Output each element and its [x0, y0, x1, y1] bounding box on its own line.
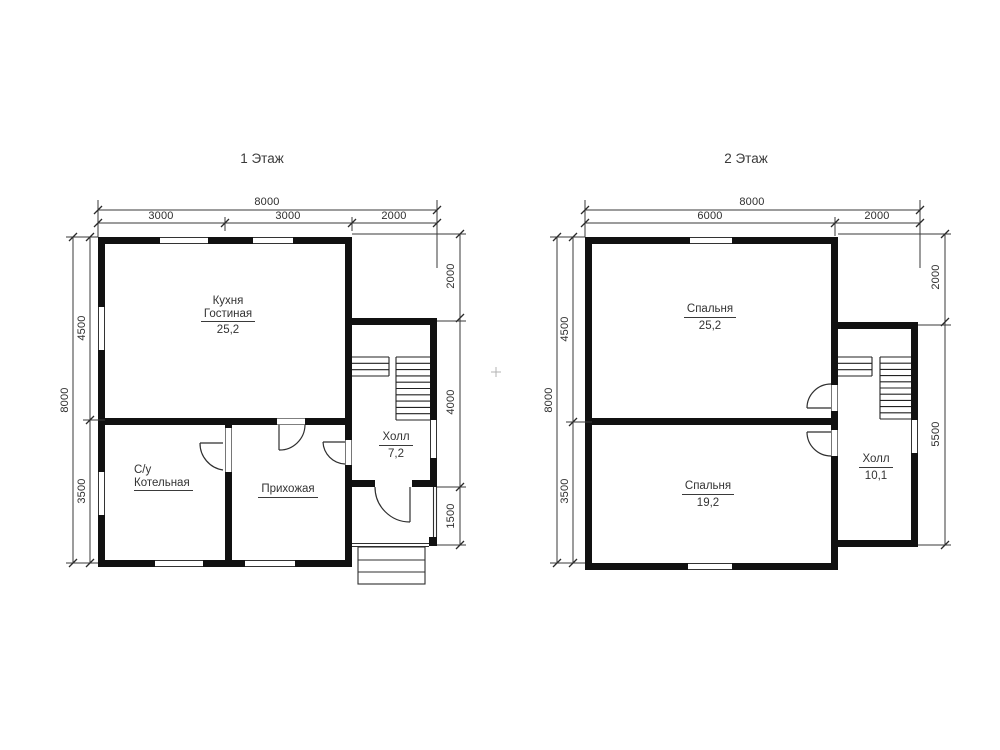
room-label-kitchen-living: Кухня Гостиная 25,2 — [186, 295, 270, 337]
dim-f1-top-total: 8000 — [237, 196, 297, 208]
wall-bottom — [98, 560, 352, 567]
dim-f2-left-seg1: 4500 — [559, 299, 571, 359]
stair-upper-flight — [838, 357, 880, 419]
dim-f1-top-seg2: 3000 — [258, 210, 318, 222]
room-label-boiler: С/у Котельная — [134, 464, 214, 491]
dimension-lines — [66, 200, 466, 563]
wall-hall-top — [838, 322, 918, 329]
dim-f1-left-total: 8000 — [59, 370, 71, 430]
window-opening — [688, 563, 732, 570]
floor1-dimensions — [66, 200, 466, 567]
room-name: Спальня — [684, 303, 736, 318]
wall-hall-right — [430, 318, 437, 487]
wall-left — [585, 237, 592, 570]
window-opening — [690, 237, 732, 244]
dim-f1-top-seg1: 3000 — [131, 210, 191, 222]
floor1-plan — [66, 200, 466, 584]
center-cross-mark — [491, 367, 501, 377]
floor2-walls — [585, 237, 918, 570]
dim-f2-right-seg2: 5500 — [930, 404, 942, 464]
dim-f1-left-seg2: 3500 — [76, 461, 88, 521]
floor1-walls — [98, 237, 437, 567]
dim-f2-top-seg2: 2000 — [847, 210, 907, 222]
floor2-stairs — [838, 357, 911, 419]
window-opening — [430, 420, 437, 458]
door-opening — [831, 430, 838, 456]
window-frames — [688, 238, 918, 570]
vestibule-walls — [352, 487, 437, 547]
door-kitchen-hallway — [279, 425, 305, 450]
window-opening — [253, 237, 293, 244]
dim-f2-right-seg1: 2000 — [930, 247, 942, 307]
floor2-windows — [688, 238, 918, 570]
floor1-openings — [98, 237, 437, 567]
dim-f1-right-seg3: 1500 — [445, 486, 457, 546]
floor1-stairs — [352, 357, 430, 420]
floor2-title: 2 Этаж — [686, 151, 806, 166]
wall-hall-bottom — [838, 540, 918, 547]
room-name: Прихожая — [258, 483, 317, 498]
window-opening — [911, 420, 918, 453]
room-area: 25,2 — [217, 322, 239, 337]
wall-hall-top — [352, 318, 437, 325]
room-name: Спальня — [682, 480, 734, 495]
door-jambs — [226, 419, 352, 473]
wall-top — [98, 237, 352, 244]
room-label-bedroom-upper: Спальня 25,2 — [668, 303, 752, 332]
wall-interior-horizontal — [105, 418, 345, 425]
door-bedroom-upper — [807, 384, 831, 408]
window-opening — [155, 560, 203, 567]
window-opening — [98, 307, 105, 350]
dim-f1-right-seg2: 4000 — [445, 372, 457, 432]
door-bedroom-lower — [807, 432, 831, 456]
stair-main-flight — [396, 357, 430, 420]
door-hallway-hall — [323, 442, 345, 464]
vestibule-corner-post — [429, 537, 437, 546]
room-name-line1: Кухня — [213, 295, 244, 308]
room-name-line2: Гостиная — [201, 308, 255, 323]
room-label-hall-f2: Холл 10,1 — [846, 453, 906, 482]
window-frames — [99, 238, 437, 567]
floorplan-linework — [0, 0, 1000, 750]
floor1-title: 1 Этаж — [202, 151, 322, 166]
window-opening — [98, 472, 105, 515]
entry-steps — [358, 547, 425, 584]
stair-upper-flight — [352, 357, 396, 420]
door-entry — [375, 487, 410, 522]
room-name: Холл — [859, 453, 892, 468]
dimension-ticks — [553, 206, 949, 567]
dim-f2-top-seg1: 6000 — [680, 210, 740, 222]
wall-left — [98, 237, 105, 567]
room-name-line2: Котельная — [134, 477, 193, 492]
door-opening — [345, 440, 352, 465]
dim-f2-top-total: 8000 — [722, 196, 782, 208]
room-label-hall-f1: Холл 7,2 — [366, 431, 426, 460]
room-label-bedroom-lower: Спальня 19,2 — [666, 480, 750, 509]
window-opening — [160, 237, 208, 244]
room-name: Холл — [379, 431, 412, 446]
door-opening — [375, 480, 412, 488]
dim-f2-left-total: 8000 — [543, 370, 555, 430]
room-area: 25,2 — [699, 318, 721, 333]
wall-interior-horizontal — [592, 418, 831, 425]
dimension-ticks — [69, 206, 464, 567]
room-name-line1: С/у — [134, 464, 151, 477]
dim-f1-top-seg3: 2000 — [364, 210, 424, 222]
stair-main-flight — [880, 357, 911, 419]
window-opening — [245, 560, 295, 567]
floorplan-canvas: 1 Этаж 2 Этаж 8000 3000 3000 2000 8000 4… — [0, 0, 1000, 750]
floor2-dimensions — [550, 200, 951, 567]
floor2-openings — [688, 237, 918, 570]
wall-right-main — [345, 237, 352, 567]
floor1-porch — [352, 487, 437, 584]
door-opening — [831, 385, 838, 411]
floor2-plan — [550, 200, 951, 570]
dim-f1-left-seg1: 4500 — [76, 298, 88, 358]
room-area: 19,2 — [697, 495, 719, 510]
floor1-windows — [99, 238, 437, 567]
entry-steps-treads — [358, 560, 425, 572]
room-area: 10,1 — [865, 468, 887, 483]
room-label-hallway: Прихожая — [248, 483, 328, 498]
door-opening — [225, 428, 232, 472]
dim-f2-left-seg2: 3500 — [559, 461, 571, 521]
room-area: 7,2 — [388, 446, 404, 461]
dim-f1-right-seg1: 2000 — [445, 246, 457, 306]
